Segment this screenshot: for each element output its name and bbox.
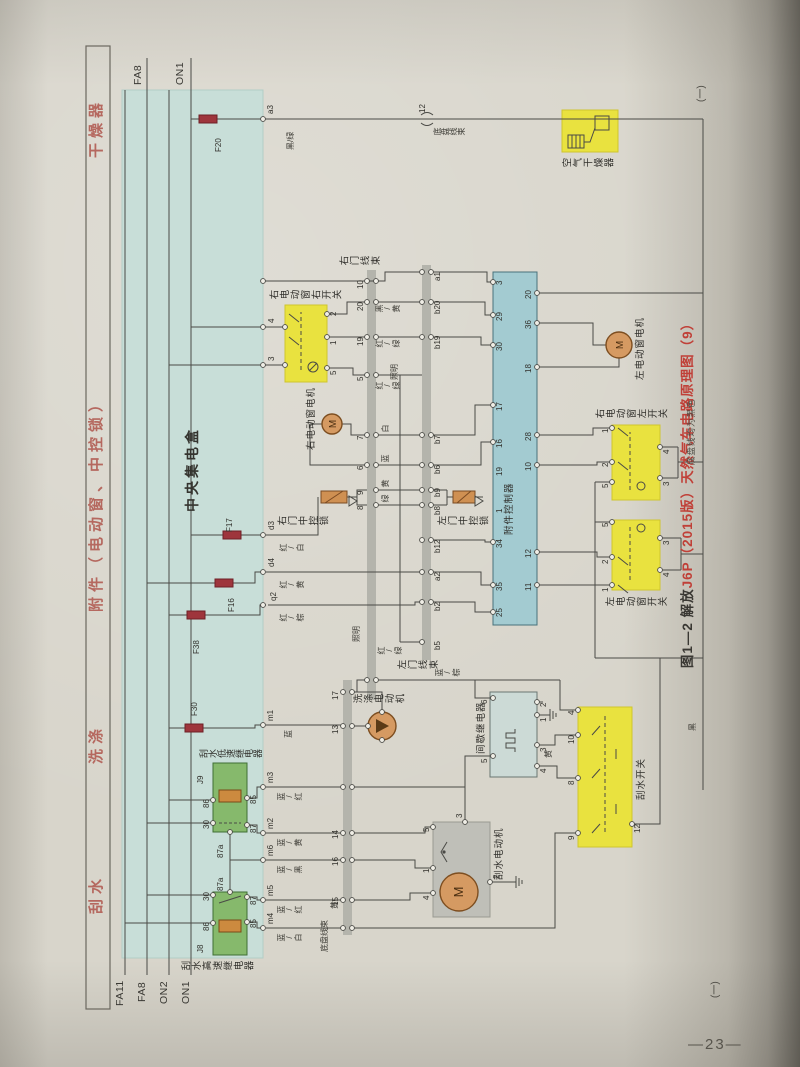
air-dryer-box: [562, 110, 618, 152]
right-door-harness-label: 右门线束: [339, 258, 381, 268]
diagram-label: b7: [434, 435, 442, 444]
ground-icon: [512, 876, 522, 888]
section-header: 干燥器: [89, 98, 104, 158]
pin-dot: [341, 858, 346, 863]
diagram-label: 5: [602, 523, 610, 527]
section-header: 刮水: [89, 874, 104, 914]
pin-dot: [341, 831, 346, 836]
wire: [352, 787, 465, 822]
pin-dot: [420, 433, 425, 438]
diagram-label: 16: [332, 857, 340, 866]
right-window-right-switch-box: [285, 305, 327, 382]
wire: [537, 323, 606, 345]
diagram-label: 3: [663, 482, 671, 486]
relay-j8-coil: [219, 920, 241, 932]
diagram-label: 1: [602, 588, 610, 592]
diagram-label: 8: [357, 506, 365, 510]
fuse-label: F16: [228, 598, 236, 612]
diagram-label: 1: [496, 509, 504, 513]
diagram-label: 25: [496, 608, 504, 617]
diagram-label: 蓝: [285, 730, 293, 738]
left-window-switch-box: [612, 520, 660, 590]
diagram-label: 30: [496, 342, 504, 351]
diagram-label: b12: [434, 540, 442, 553]
pin-dot: [535, 291, 540, 296]
pin-dot: [610, 583, 615, 588]
pin-dot: [261, 363, 266, 368]
diagram-label: 1: [423, 869, 431, 873]
intermittent-relay-label: 间歇继电器: [477, 701, 487, 754]
pin-dot: [420, 335, 425, 340]
diagram-label: 2: [493, 875, 501, 879]
diagram-label: 12: [634, 824, 642, 833]
pin-dot: [431, 825, 436, 830]
diagram-label: 85: [250, 919, 258, 928]
pin-dot: [261, 570, 266, 575]
pin-dot: [261, 898, 266, 903]
diagram-label: q2: [270, 592, 278, 601]
left-door-harness-label: 左门线束: [397, 662, 439, 672]
diagram-label: 3: [456, 814, 464, 818]
diagram-label: a2: [434, 572, 442, 581]
diagram-label: 19: [496, 467, 504, 476]
pin-dot: [420, 300, 425, 305]
diagram-label: a3: [267, 105, 275, 114]
diagram-label: 86: [203, 922, 211, 931]
pin-dot: [431, 866, 436, 871]
pin-dot: [576, 733, 581, 738]
diagram-label: 86: [203, 799, 211, 808]
pin-dot: [365, 433, 370, 438]
pin-dot: [261, 533, 266, 538]
diagram-label: 蓝: [381, 455, 389, 463]
diagram-label: 3: [268, 357, 276, 361]
rw-motor-label: 右电动窗电机: [307, 387, 317, 450]
diagram-label: 34: [496, 539, 504, 548]
fuse-F20: [199, 115, 217, 123]
fuse-F30: [185, 724, 203, 732]
pin-dot: [535, 713, 540, 718]
diagram-label: 5: [357, 377, 365, 381]
diagram-label: m4: [267, 913, 275, 924]
section-header: 洗涤: [89, 724, 104, 764]
diagram-label: 13: [332, 725, 340, 734]
pin-dot: [261, 926, 266, 931]
diagram-label: 1: [602, 429, 610, 433]
diagram-label: 黑/黄: [375, 305, 400, 313]
pin-dot: [228, 830, 233, 835]
pin-dot: [535, 321, 540, 326]
pin-dot: [535, 433, 540, 438]
pin-dot: [341, 898, 346, 903]
wire: [431, 405, 493, 435]
pin-dot: [491, 754, 496, 759]
diagram-label: 3: [496, 281, 504, 285]
pin-dot: [420, 463, 425, 468]
pin-dot: [491, 696, 496, 701]
pin-dot: [261, 831, 266, 836]
wiper-motor-letter: M: [451, 887, 466, 898]
diagram-label: J8: [197, 945, 205, 953]
pin-dot: [374, 433, 379, 438]
diagram-label: a1: [434, 272, 442, 281]
diagram-label: 4: [423, 896, 431, 900]
diagram-label: 9: [568, 836, 576, 840]
wire: [352, 827, 433, 833]
diagram-label: 绿: [381, 495, 389, 503]
diagram-label: 2: [330, 312, 338, 316]
diagram-label: 红/绿: [375, 340, 400, 348]
pin-dot: [365, 335, 370, 340]
diagram-label: 照明: [391, 364, 399, 380]
pin-dot: [261, 117, 266, 122]
pin-dot: [366, 724, 371, 729]
diagram-label: d4: [268, 558, 276, 567]
diagram-label: 5: [481, 759, 489, 763]
washer-motor-label: 洗涤电动机: [353, 696, 406, 706]
pin-dot: [658, 536, 663, 541]
pin-dot: [431, 891, 436, 896]
wire: [537, 358, 619, 367]
pin-dot: [535, 463, 540, 468]
pin-dot: [374, 373, 379, 378]
diagram-label: m6: [267, 845, 275, 856]
diagram-label: 85: [250, 795, 258, 804]
diagram-label: 6: [481, 700, 489, 704]
continuation-mark-right: (一): [697, 85, 707, 102]
pin-dot: [535, 365, 540, 370]
diagram-label: 3: [663, 541, 671, 545]
diagram-label: 30: [203, 892, 211, 901]
diagram-label: 87a: [217, 845, 225, 858]
diagram-label: 蓝/红: [277, 793, 302, 801]
pin-dot: [325, 335, 330, 340]
pin-dot: [350, 724, 355, 729]
diagram-label: 7: [357, 436, 365, 440]
diagram-label: 5: [423, 828, 431, 832]
fuse-label: F17: [226, 518, 234, 532]
diagram-label: 红/黄: [279, 581, 304, 589]
pin-dot: [283, 363, 288, 368]
diagram-label: 白: [381, 425, 389, 433]
diagram-label: 10: [525, 462, 533, 471]
diagram-label: 9: [357, 491, 365, 495]
pin-dot: [374, 463, 379, 468]
pin-dot: [576, 708, 581, 713]
diagram-label: 1: [540, 718, 548, 722]
pin-dot: [380, 710, 385, 715]
pin-dot: [374, 488, 379, 493]
diagram-label: 蓝/黄: [277, 839, 302, 847]
wiring-diagram: MMM 图1—2 解放J6P（2015版）天然气车电路原理图（9） 底盘线均为黑…: [85, 45, 733, 1010]
diagram-label: 17: [332, 691, 340, 700]
pin-dot: [374, 503, 379, 508]
diagram-label: 2: [540, 703, 548, 707]
rw-left-switch-label: 右电动窗左开关: [595, 411, 669, 421]
diagram-label: 4: [540, 769, 548, 773]
fuse-label: F38: [193, 640, 201, 654]
central-junction-box-label: 中央集电盒: [185, 427, 199, 512]
left-window-motor-letter: M: [615, 341, 626, 349]
diagram-label: 29: [496, 312, 504, 321]
pin-dot: [610, 426, 615, 431]
pin-dot: [610, 520, 615, 525]
diagram-label: 4: [663, 573, 671, 577]
bus-line-label: FA8: [133, 65, 144, 85]
pin-dot: [658, 445, 663, 450]
diagram-label: 17: [496, 402, 504, 411]
intermittent-relay-box: [490, 692, 537, 777]
diagram-label: 87a: [217, 878, 225, 891]
bus-line-label: ON1: [181, 981, 192, 1004]
diagram-label: 30: [203, 820, 211, 829]
bus-line-label: ON1: [175, 62, 186, 85]
pin-dot: [228, 890, 233, 895]
caption-prefix: 图1—2 解放: [680, 588, 695, 668]
diagram-label: 1: [330, 341, 338, 345]
diagram-label: m3: [267, 772, 275, 783]
chassis-harness-label-2: 底盘线束: [433, 128, 465, 136]
diagram-label: 6: [357, 466, 365, 470]
diagram-label: m1: [267, 710, 275, 721]
wire: [475, 680, 490, 698]
pin-dot: [350, 785, 355, 790]
diagram-label: 36: [525, 320, 533, 329]
pin-dot: [463, 820, 468, 825]
pin-dot: [420, 488, 425, 493]
diagram-label: b9: [434, 488, 442, 497]
diagram-label: b19: [434, 336, 442, 349]
pin-dot: [325, 366, 330, 371]
diagram-label: 10: [357, 280, 365, 289]
accessory-controller-label: 附件控制器: [505, 482, 515, 535]
pin-dot: [420, 270, 425, 275]
pin-dot: [610, 480, 615, 485]
wiper-switch-label: 刮水开关: [637, 758, 647, 800]
right-door-lock-label: 右门中控锁: [277, 518, 330, 528]
diagram-label: 12: [419, 104, 427, 113]
pin-dot: [365, 279, 370, 284]
pin-dot: [261, 279, 266, 284]
wiper-motor-label: 刮水电动机: [495, 827, 505, 880]
diagram-label: 红/棕: [279, 614, 304, 622]
pin-dot: [261, 325, 266, 330]
diagram-label: 4: [268, 319, 276, 323]
relay-j9-label: 刮水低速继电器: [199, 750, 247, 759]
pin-dot: [380, 738, 385, 743]
diagram-label: 黄: [331, 901, 339, 909]
pin-dot: [211, 821, 216, 826]
diagram-label: 蓝/红: [277, 906, 302, 914]
diagram-label: 2: [602, 560, 610, 564]
continuation-mark-left: (一): [711, 981, 721, 998]
pin-dot: [576, 831, 581, 836]
diagram-label: 87: [250, 824, 258, 833]
pin-dot: [341, 785, 346, 790]
wire: [560, 680, 578, 710]
book-page-photo: MMM 图1—2 解放J6P（2015版）天然气车电路原理图（9） 底盘线均为黑…: [0, 0, 800, 1067]
pin-dot: [341, 724, 346, 729]
diagram-label: 红/白: [279, 544, 304, 552]
pin-dot: [350, 858, 355, 863]
diagram-label: m5: [267, 885, 275, 896]
diagram-label: 20: [525, 290, 533, 299]
diagram-label: J9: [197, 776, 205, 784]
chassis-harness-label: 底盘线束: [321, 920, 329, 952]
diagram-label: 5: [330, 371, 338, 375]
relay-j8-label: 刮水高速继电器: [181, 963, 255, 973]
relay-j9-coil: [219, 790, 241, 802]
pin-dot: [420, 640, 425, 645]
figure-caption: 图1—2 解放J6P（2015版）天然气车电路原理图（9）: [676, 262, 696, 722]
diagram-label: 14: [332, 830, 340, 839]
wire: [342, 424, 367, 435]
pin-dot: [420, 503, 425, 508]
fuse-F16: [215, 579, 233, 587]
lw-motor-label: 左电动窗电机: [636, 317, 646, 380]
diagram-label: 黄: [381, 480, 389, 488]
diagram-label: 红/绿: [377, 647, 402, 655]
page-number: —23—: [688, 1036, 743, 1053]
connector-band-chassis: [343, 680, 352, 935]
diagram-label: 4: [568, 711, 576, 715]
pin-dot: [261, 785, 266, 790]
diagram-label: 20: [357, 302, 365, 311]
pin-dot: [283, 325, 288, 330]
diagram-label: m2: [267, 818, 275, 829]
pin-dot: [365, 678, 370, 683]
diagram-label: 28: [525, 432, 533, 441]
pin-dot: [261, 603, 266, 608]
air-dryer-label: 空气干燥器: [562, 160, 615, 170]
diagram-label: 2: [602, 463, 610, 467]
bus-line-label: FA8: [137, 982, 148, 1002]
pin-dot: [374, 678, 379, 683]
pin-dot: [350, 926, 355, 931]
fuse-label: F30: [191, 702, 199, 716]
wire: [352, 860, 433, 868]
pin-dot: [211, 893, 216, 898]
diagram-label: 5: [602, 484, 610, 488]
pin-dot: [341, 690, 346, 695]
diagram-label: 12: [525, 549, 533, 558]
pin-dot: [658, 476, 663, 481]
pin-dot: [610, 555, 615, 560]
wiper-switch-box: [578, 707, 632, 847]
bus-line-label: FA11: [115, 980, 126, 1006]
wire: [268, 602, 422, 605]
fuse-label: F20: [215, 138, 223, 152]
pin-dot: [261, 858, 266, 863]
diagram-canvas: MMM: [85, 45, 733, 1010]
pin-dot: [350, 831, 355, 836]
pin-dot: [535, 764, 540, 769]
pin-dot: [211, 798, 216, 803]
wire: [537, 552, 612, 557]
diagram-label: 黑: [689, 723, 697, 731]
pin-dot: [488, 880, 493, 885]
inline-connector: [421, 123, 433, 126]
contact-dot: [442, 850, 445, 853]
pin-dot: [420, 570, 425, 575]
diagram-label: 19: [357, 337, 365, 346]
pin-dot: [365, 300, 370, 305]
diagram-label: 照明: [353, 626, 361, 642]
pin-dot: [365, 463, 370, 468]
diagram-label: 11: [525, 583, 533, 591]
diagram-label: 黑/绿: [287, 132, 295, 150]
pin-dot: [261, 723, 266, 728]
diagram-label: 35: [496, 582, 504, 591]
fuse-F17: [223, 531, 241, 539]
pin-dot: [420, 600, 425, 605]
diagram-label: b5: [434, 641, 442, 650]
diagram-note: 底盘线均为黑色: [687, 398, 696, 465]
diagram-label: 蓝/黑: [277, 866, 302, 874]
diagram-label: 黄: [545, 750, 553, 758]
pin-dot: [350, 898, 355, 903]
diagram-label: 8: [568, 781, 576, 785]
pin-dot: [211, 921, 216, 926]
diagram-label: 蓝/棕: [435, 669, 460, 677]
lw-switch-label: 左电动窗开关: [605, 599, 668, 609]
left-door-lock-label: 左门中控锁: [437, 518, 490, 528]
diagram-label: 87: [250, 896, 258, 905]
diagram-label: 4: [663, 450, 671, 454]
diagram-label: b6: [434, 465, 442, 474]
pin-dot: [658, 568, 663, 573]
pin-dot: [535, 583, 540, 588]
wire: [352, 893, 433, 900]
pin-dot: [341, 926, 346, 931]
pin-dot: [576, 776, 581, 781]
diagram-label: 16: [496, 439, 504, 448]
wire: [263, 272, 422, 281]
diagram-label: 红/绿: [375, 382, 400, 390]
fuse-F38: [187, 611, 205, 619]
pin-dot: [374, 279, 379, 284]
diagram-label: d3: [268, 521, 276, 530]
pin-dot: [610, 460, 615, 465]
diagram-label: 18: [525, 364, 533, 373]
diagram-label: b2: [434, 602, 442, 611]
bus-line-label: ON2: [159, 981, 170, 1004]
rw-right-switch-label: 右电动窗右开关: [269, 292, 343, 302]
diagram-label: 蓝/白: [277, 934, 302, 942]
diagram-label: b8: [434, 506, 442, 515]
wire: [431, 442, 493, 465]
diagram-label: 10: [568, 735, 576, 744]
section-header: 附件（电动窗、中控锁）: [89, 392, 104, 612]
diagram-label: b20: [434, 301, 442, 314]
pin-dot: [535, 550, 540, 555]
pin-dot: [535, 743, 540, 748]
pin-dot: [365, 373, 370, 378]
right-window-motor-letter: M: [328, 420, 339, 428]
pin-dot: [420, 538, 425, 543]
